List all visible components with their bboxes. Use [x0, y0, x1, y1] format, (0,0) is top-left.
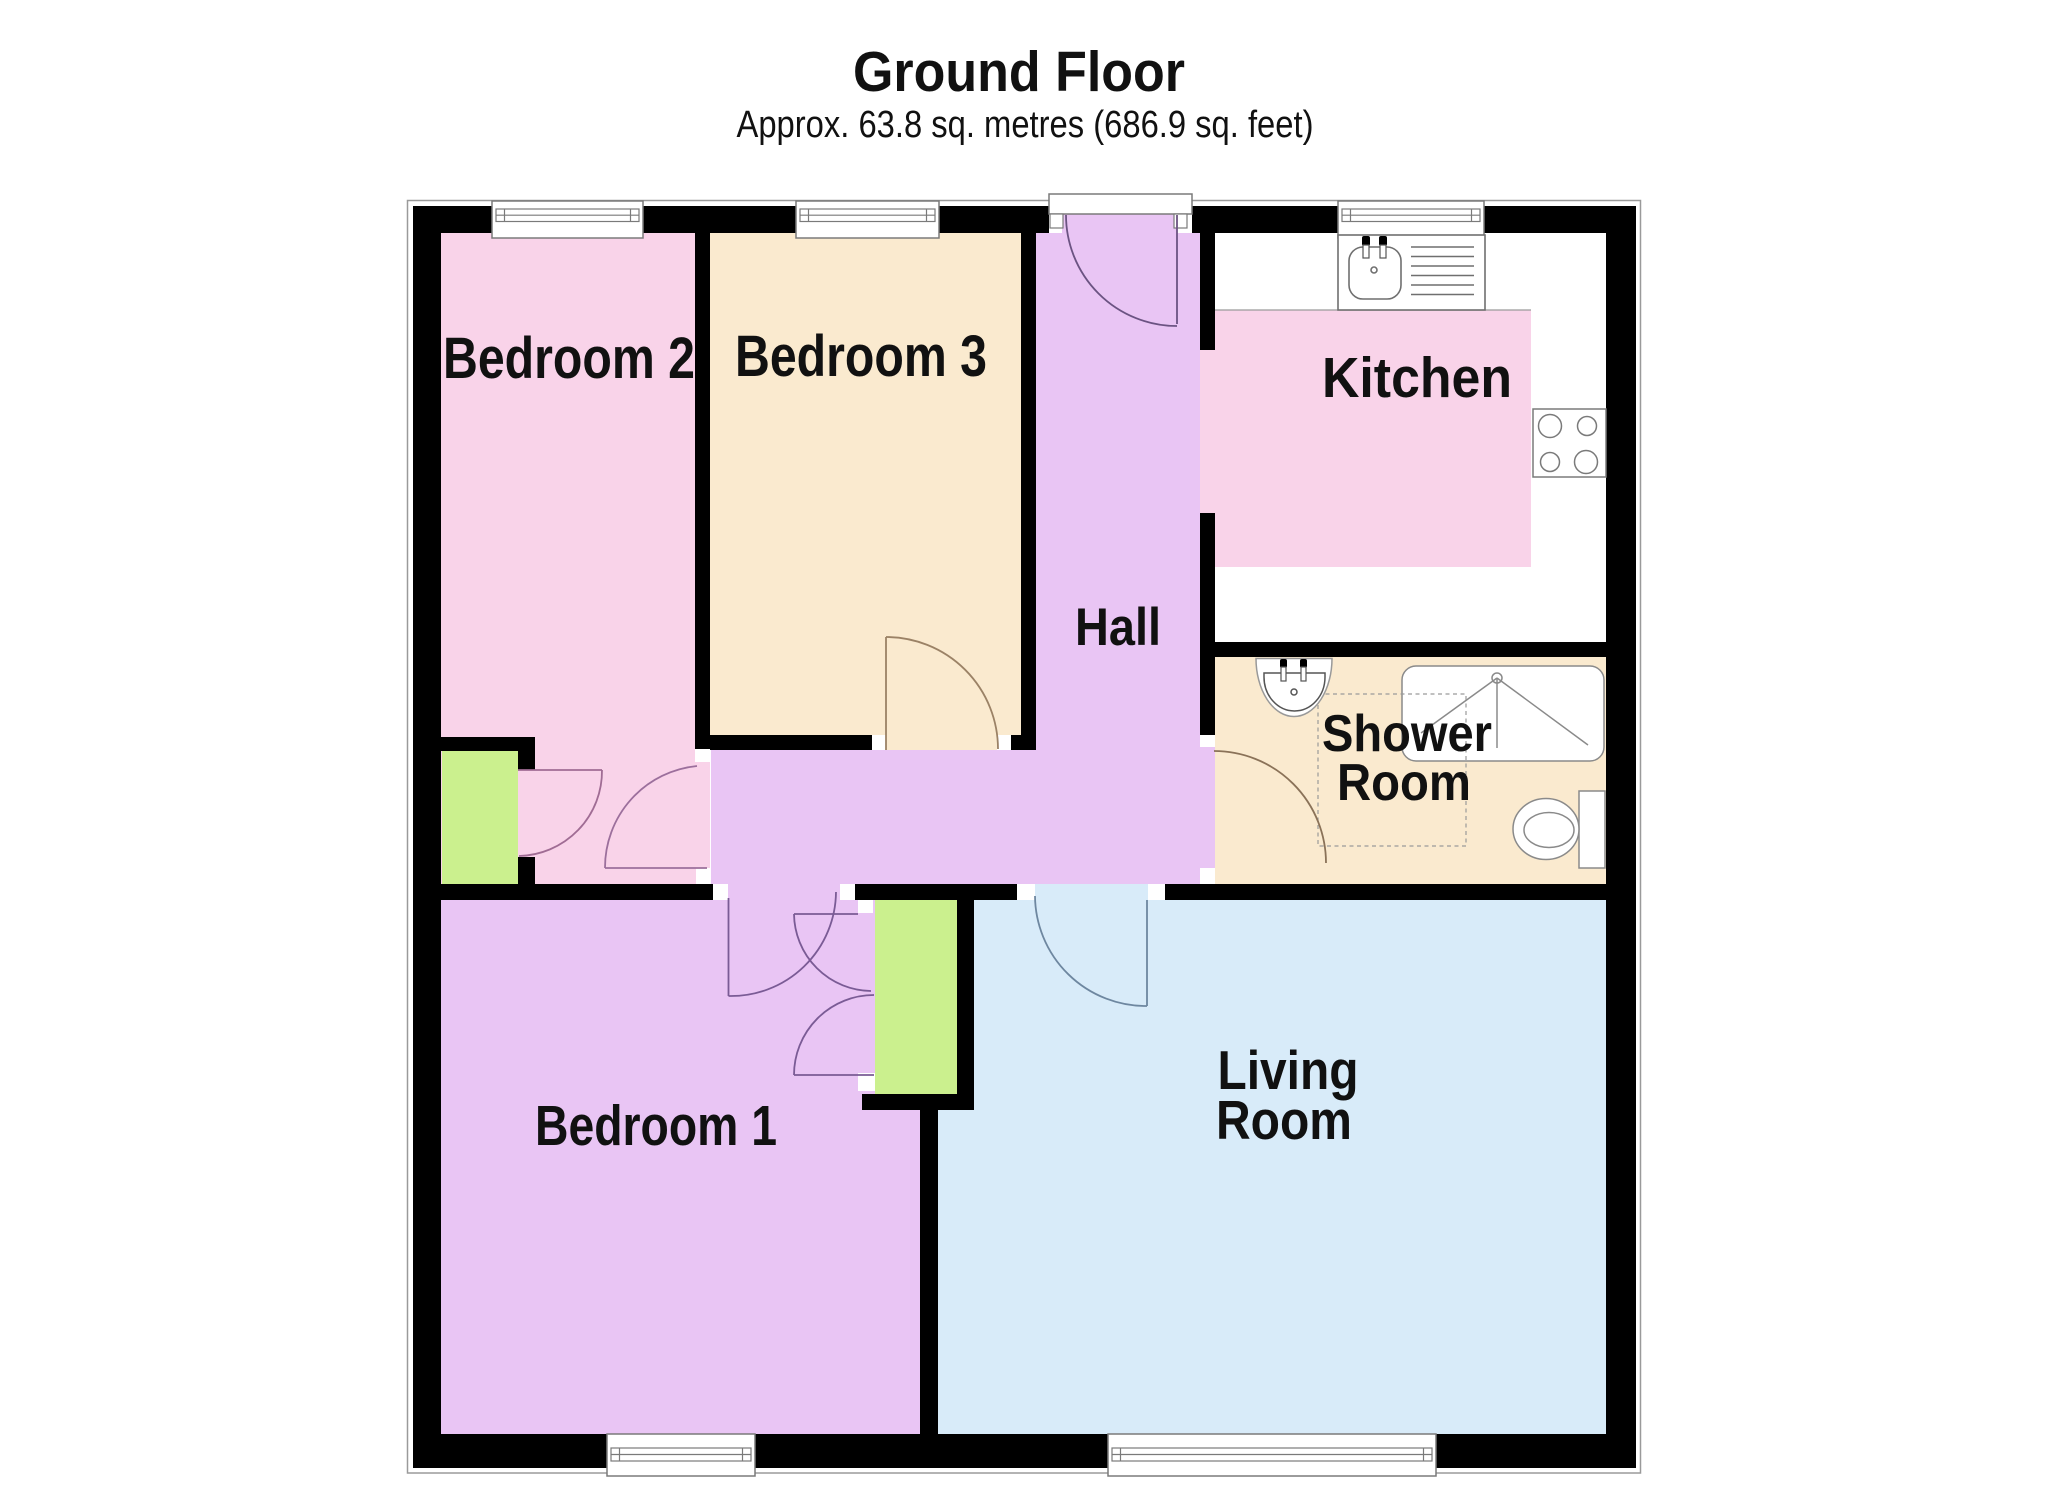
svg-text:Room: Room: [1216, 1089, 1352, 1151]
svg-text:Hall: Hall: [1075, 598, 1161, 657]
svg-text:Bedroom 3: Bedroom 3: [735, 324, 987, 389]
svg-text:Room: Room: [1337, 754, 1471, 812]
svg-text:Kitchen: Kitchen: [1322, 346, 1512, 410]
svg-text:Bedroom 1: Bedroom 1: [535, 1094, 777, 1158]
svg-text:Bedroom 2: Bedroom 2: [443, 326, 695, 391]
svg-text:Ground Floor: Ground Floor: [853, 40, 1185, 104]
svg-text:Approx. 63.8 sq. metres (686.9: Approx. 63.8 sq. metres (686.9 sq. feet): [737, 104, 1314, 146]
